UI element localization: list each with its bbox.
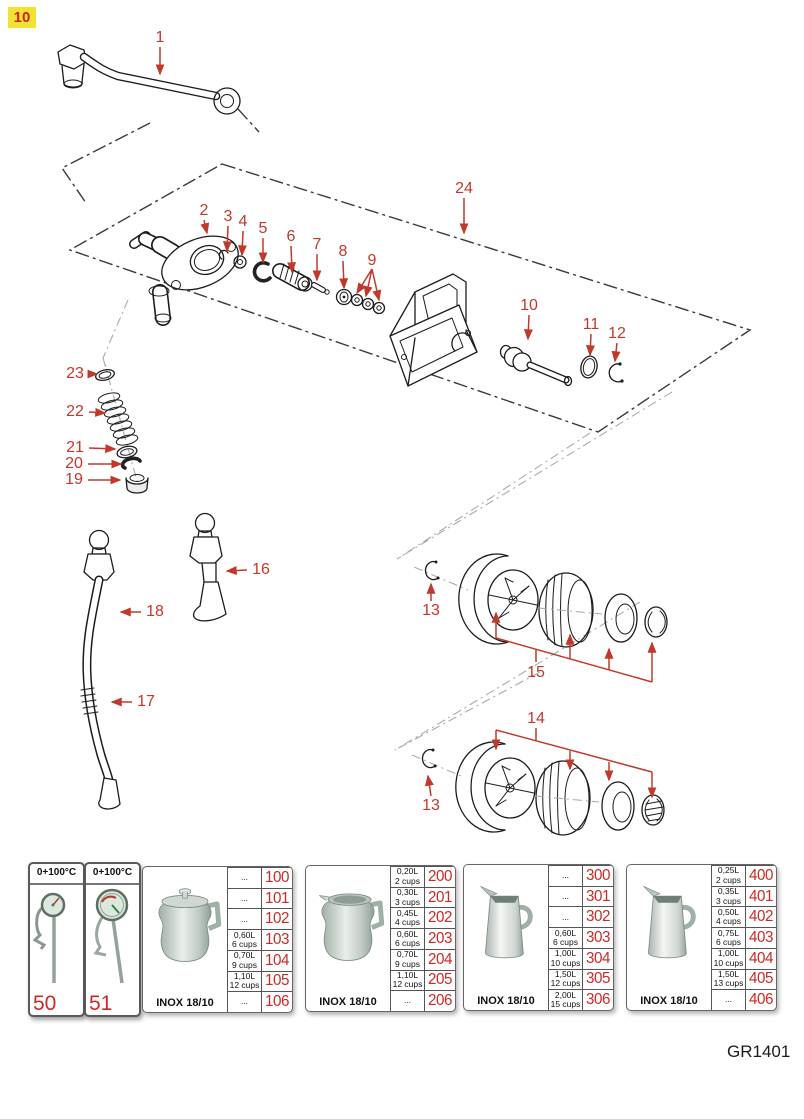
- part-code: 50: [33, 993, 56, 1015]
- capacity-cell: ...: [549, 866, 583, 886]
- bracket: [390, 274, 477, 386]
- capacity-cell: 0,75L 6 cups: [712, 928, 746, 948]
- pitcher-rows: ... 100 ... 101 ...: [228, 867, 292, 1012]
- capacity-cups: 12 cups: [230, 981, 260, 991]
- capacity-size: ...: [241, 997, 248, 1007]
- part-code: 304: [584, 949, 613, 969]
- capacity-cell: ...: [549, 907, 583, 927]
- pitcher-row: 0,50L 4 cups 402: [712, 906, 776, 927]
- capacity-cell: 1,00L 10 cups: [712, 949, 746, 969]
- capacity-cups: 12 cups: [551, 979, 581, 989]
- part-code: 102: [263, 909, 292, 929]
- thermometer-image: [86, 885, 136, 990]
- belly-pitcher-image: [311, 872, 385, 970]
- pitcher-row: 0,45L 4 cups 202: [391, 907, 455, 928]
- callout-21: 21: [66, 440, 84, 456]
- pitcher-row: 0,35L 3 cups 401: [712, 886, 776, 907]
- capacity-cell: ...: [228, 889, 262, 909]
- pitcher-row: 1,10L 12 cups 105: [228, 971, 292, 992]
- part-code: 100: [263, 868, 292, 888]
- part-5-snap-ring: [254, 263, 270, 281]
- callout-20: 20: [65, 456, 83, 472]
- part-11-ring: [579, 355, 599, 380]
- pitcher-row: 0,75L 6 cups 403: [712, 927, 776, 948]
- drawing-code: GR1401: [727, 1042, 790, 1062]
- material-label: INOX 18/10: [464, 995, 548, 1007]
- pitcher-row: ... 100: [228, 867, 292, 888]
- capacity-cell: 2,00L 15 cups: [549, 990, 583, 1010]
- callout-19: 19: [65, 472, 83, 488]
- callout-23: 23: [66, 366, 84, 382]
- pitcher-row: 0,70L 9 cups 104: [228, 950, 292, 971]
- part-code: 306: [584, 990, 613, 1010]
- callout-16: 16: [252, 562, 270, 578]
- part-code: 404: [747, 949, 776, 969]
- callout-24: 24: [455, 181, 473, 197]
- capacity-cell: 0,60L 6 cups: [391, 929, 425, 949]
- pitcher-row: 1,50L 13 cups 405: [712, 969, 776, 990]
- pitcher-row: ... 101: [228, 888, 292, 909]
- callout-8: 8: [339, 244, 348, 260]
- pitcher-row: 0,25L 2 cups 400: [712, 865, 776, 886]
- capacity-cups: 2 cups: [716, 876, 741, 886]
- part-code: 200: [426, 867, 455, 887]
- pitcher-row: 0,60L 6 cups 103: [228, 929, 292, 950]
- capacity-cups: 2 cups: [395, 877, 420, 887]
- pitcher-row: ... 206: [391, 990, 455, 1011]
- capacity-cell: 0,70L 9 cups: [391, 950, 425, 970]
- pitcher-image-cell: INOX 18/10: [143, 867, 228, 1012]
- part-code: 104: [263, 951, 292, 971]
- pitcher-rows: 0,25L 2 cups 400 0,35L 3 cups 401 0,50: [712, 865, 776, 1010]
- capacity-cell: 0,20L 2 cups: [391, 867, 425, 887]
- part-20-gasket: [123, 458, 140, 468]
- part-code: 203: [426, 929, 455, 949]
- pitcher-rows: ... 300 ... 301 ...: [549, 865, 613, 1010]
- callout-9: 9: [368, 253, 377, 269]
- part-code: 206: [426, 991, 455, 1011]
- callout-13-upper: 13: [422, 603, 440, 619]
- capacity-cell: 1,10L 12 cups: [391, 971, 425, 991]
- projection-lines: [103, 300, 672, 776]
- capacity-size: ...: [562, 892, 569, 902]
- capacity-size: ...: [562, 913, 569, 923]
- callout-13-lower: 13: [422, 798, 440, 814]
- pitcher-row: ... 301: [549, 886, 613, 907]
- pitcher-block-400: INOX 18/10 0,25L 2 cups 400 0,35L 3 cups: [626, 864, 777, 1011]
- page-number-badge: 10: [8, 7, 36, 28]
- capacity-size: ...: [241, 894, 248, 904]
- temperature-range-label: 0+100°C: [86, 864, 139, 885]
- thermometer-image: [30, 885, 79, 990]
- part-code: 300: [584, 866, 613, 886]
- pitcher-row: ... 302: [549, 906, 613, 927]
- pitcher-block-300: INOX 18/10 ... 300 ... 301: [463, 864, 614, 1011]
- part-code: 406: [747, 990, 776, 1010]
- capacity-cell: ...: [391, 991, 425, 1011]
- part-code: 303: [584, 928, 613, 948]
- capacity-cups: 12 cups: [393, 980, 423, 990]
- capacity-cell: ...: [549, 887, 583, 907]
- part-9-washers: [352, 295, 385, 314]
- capacity-cell: 0,60L 6 cups: [228, 930, 262, 950]
- callout-6: 6: [287, 229, 296, 245]
- capacity-cell: 0,60L 6 cups: [549, 928, 583, 948]
- capacity-cups: 13 cups: [714, 979, 744, 989]
- pitcher-row: ... 106: [228, 991, 292, 1012]
- part-code: 105: [263, 972, 292, 992]
- capacity-cell: 1,50L 12 cups: [549, 970, 583, 990]
- capacity-cell: 0,25L 2 cups: [712, 866, 746, 886]
- part-code: 403: [747, 928, 776, 948]
- part-code: 204: [426, 950, 455, 970]
- part-code: 103: [263, 930, 292, 950]
- part-code: 202: [426, 908, 455, 928]
- part-code: 302: [584, 907, 613, 927]
- callout-15: 15: [527, 665, 545, 681]
- pitcher-row: 1,50L 12 cups 305: [549, 969, 613, 990]
- pitcher-row: 2,00L 15 cups 306: [549, 989, 613, 1010]
- straight-pitcher-image: [469, 871, 543, 969]
- part-code: 405: [747, 970, 776, 990]
- capacity-cups: 9 cups: [232, 961, 257, 971]
- pitcher-row: 1,10L 12 cups 205: [391, 970, 455, 991]
- capacity-size: ...: [404, 996, 411, 1006]
- material-label: INOX 18/10: [627, 995, 711, 1007]
- capacity-cups: 6 cups: [716, 938, 741, 948]
- part-17-18-steam-wand: [81, 531, 120, 809]
- capacity-cups: 15 cups: [551, 1000, 581, 1010]
- capacity-cups: 9 cups: [395, 960, 420, 970]
- belly-pitcher-image: [148, 873, 222, 971]
- capacity-cups: 6 cups: [395, 939, 420, 949]
- capacity-cups: 3 cups: [395, 898, 420, 908]
- part-code: 401: [747, 887, 776, 907]
- capacity-cell: ...: [228, 909, 262, 929]
- pitcher-row: 0,30L 3 cups 201: [391, 887, 455, 908]
- capacity-cell: 0,70L 9 cups: [228, 951, 262, 971]
- pitcher-row: 1,00L 10 cups 304: [549, 948, 613, 969]
- callout-17: 17: [137, 694, 155, 710]
- part-23-seal: [95, 368, 116, 382]
- knob-assembly-15: [426, 554, 667, 647]
- capacity-size: ...: [241, 915, 248, 925]
- part-code: 201: [426, 888, 455, 908]
- part-16-nozzle: [190, 514, 226, 621]
- callout-11: 11: [583, 317, 600, 333]
- capacity-cups: 4 cups: [395, 918, 420, 928]
- callout-10: 10: [520, 298, 538, 314]
- capacity-cell: 0,30L 3 cups: [391, 888, 425, 908]
- material-label: INOX 18/10: [143, 997, 227, 1009]
- capacity-cups: 4 cups: [716, 917, 741, 927]
- pitcher-row: 0,60L 6 cups 303: [549, 927, 613, 948]
- capacity-cups: 10 cups: [714, 959, 744, 969]
- catalog-page: 10 1 2 3 4 5 6 7 8 9 24 10 11 12 23 22 2…: [0, 0, 804, 1119]
- callout-18: 18: [146, 604, 164, 620]
- part-code: 51: [89, 993, 112, 1015]
- material-label: INOX 18/10: [306, 996, 390, 1008]
- capacity-size: ...: [241, 873, 248, 883]
- capacity-cups: 6 cups: [232, 940, 257, 950]
- capacity-cups: 6 cups: [553, 938, 578, 948]
- part-1-pipe: [58, 45, 259, 132]
- part-code: 101: [263, 889, 292, 909]
- capacity-cell: ...: [228, 992, 262, 1012]
- capacity-cell: ...: [712, 990, 746, 1010]
- knob-assembly-14: [423, 742, 664, 835]
- pitcher-row: 1,00L 10 cups 404: [712, 948, 776, 969]
- capacity-cell: 0,45L 4 cups: [391, 908, 425, 928]
- part-2-valve-body: [134, 226, 246, 322]
- callout-4: 4: [239, 214, 248, 230]
- straight-pitcher-image: [632, 871, 706, 969]
- capacity-cups: 10 cups: [551, 959, 581, 969]
- callout-3: 3: [224, 209, 233, 225]
- part-7-pin: [314, 285, 329, 294]
- part-code: 402: [747, 907, 776, 927]
- capacity-cell: 0,50L 4 cups: [712, 907, 746, 927]
- thermometer-block-51: 0+100°C 51: [84, 862, 141, 1017]
- pitcher-image-cell: INOX 18/10: [306, 866, 391, 1011]
- pitcher-block-100: INOX 18/10 ... 100 ... 101: [142, 866, 293, 1013]
- capacity-cell: 0,35L 3 cups: [712, 887, 746, 907]
- part-10-shaft: [501, 346, 572, 386]
- temperature-range-label: 0+100°C: [30, 864, 83, 885]
- pitcher-row: 0,70L 9 cups 204: [391, 949, 455, 970]
- pitcher-rows: 0,20L 2 cups 200 0,30L 3 cups 201 0,45: [391, 866, 455, 1011]
- pitcher-row: ... 102: [228, 908, 292, 929]
- callout-12: 12: [608, 326, 626, 342]
- capacity-cups: 3 cups: [716, 897, 741, 907]
- part-6-valve-plug: [280, 264, 312, 291]
- callout-22: 22: [66, 404, 84, 420]
- part-8-seat: [337, 290, 352, 305]
- pitcher-block-200: INOX 18/10 0,20L 2 cups 200 0,30L 3 cups: [305, 865, 456, 1012]
- capacity-cell: 1,10L 12 cups: [228, 972, 262, 992]
- thermometer-block-50: 0+100°C 50: [28, 862, 85, 1017]
- pitcher-image-cell: INOX 18/10: [464, 865, 549, 1010]
- callout-14: 14: [527, 711, 545, 727]
- capacity-cell: 1,50L 13 cups: [712, 970, 746, 990]
- pitcher-row: 0,20L 2 cups 200: [391, 866, 455, 887]
- part-22-spring: [97, 391, 139, 447]
- callout-1: 1: [156, 30, 165, 46]
- capacity-size: ...: [562, 871, 569, 881]
- callout-2: 2: [200, 203, 209, 219]
- part-12-circlip: [609, 362, 623, 382]
- part-code: 400: [747, 866, 776, 886]
- capacity-size: ...: [725, 995, 732, 1005]
- part-19-cap: [126, 475, 148, 494]
- callout-7: 7: [313, 237, 322, 253]
- capacity-cell: 1,00L 10 cups: [549, 949, 583, 969]
- pitcher-row: ... 406: [712, 989, 776, 1010]
- pitcher-image-cell: INOX 18/10: [627, 865, 712, 1010]
- pitcher-row: 0,60L 6 cups 203: [391, 928, 455, 949]
- capacity-cell: ...: [228, 868, 262, 888]
- pitcher-row: ... 300: [549, 865, 613, 886]
- part-code: 301: [584, 887, 613, 907]
- part-code: 205: [426, 971, 455, 991]
- callout-5: 5: [259, 221, 268, 237]
- part-code: 106: [263, 992, 292, 1012]
- part-code: 305: [584, 970, 613, 990]
